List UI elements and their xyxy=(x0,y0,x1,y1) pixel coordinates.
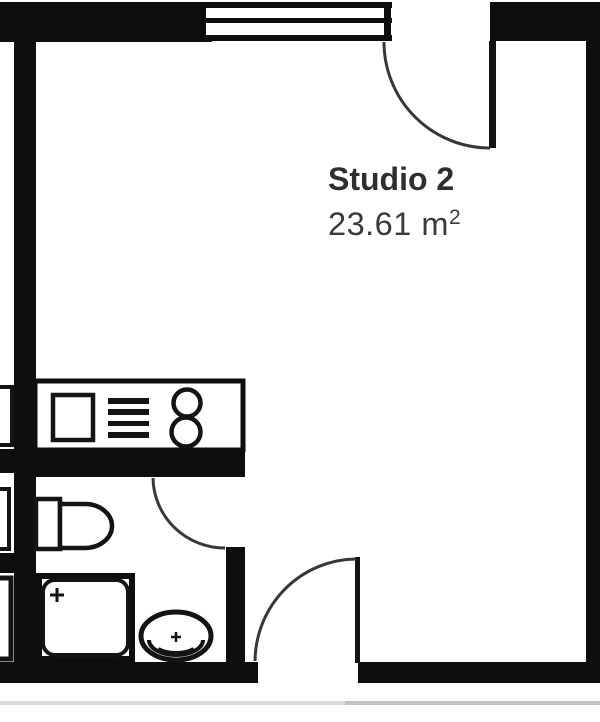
svg-text:Studio 2: Studio 2 xyxy=(328,161,454,197)
svg-text:23.61 m2: 23.61 m2 xyxy=(328,206,461,242)
